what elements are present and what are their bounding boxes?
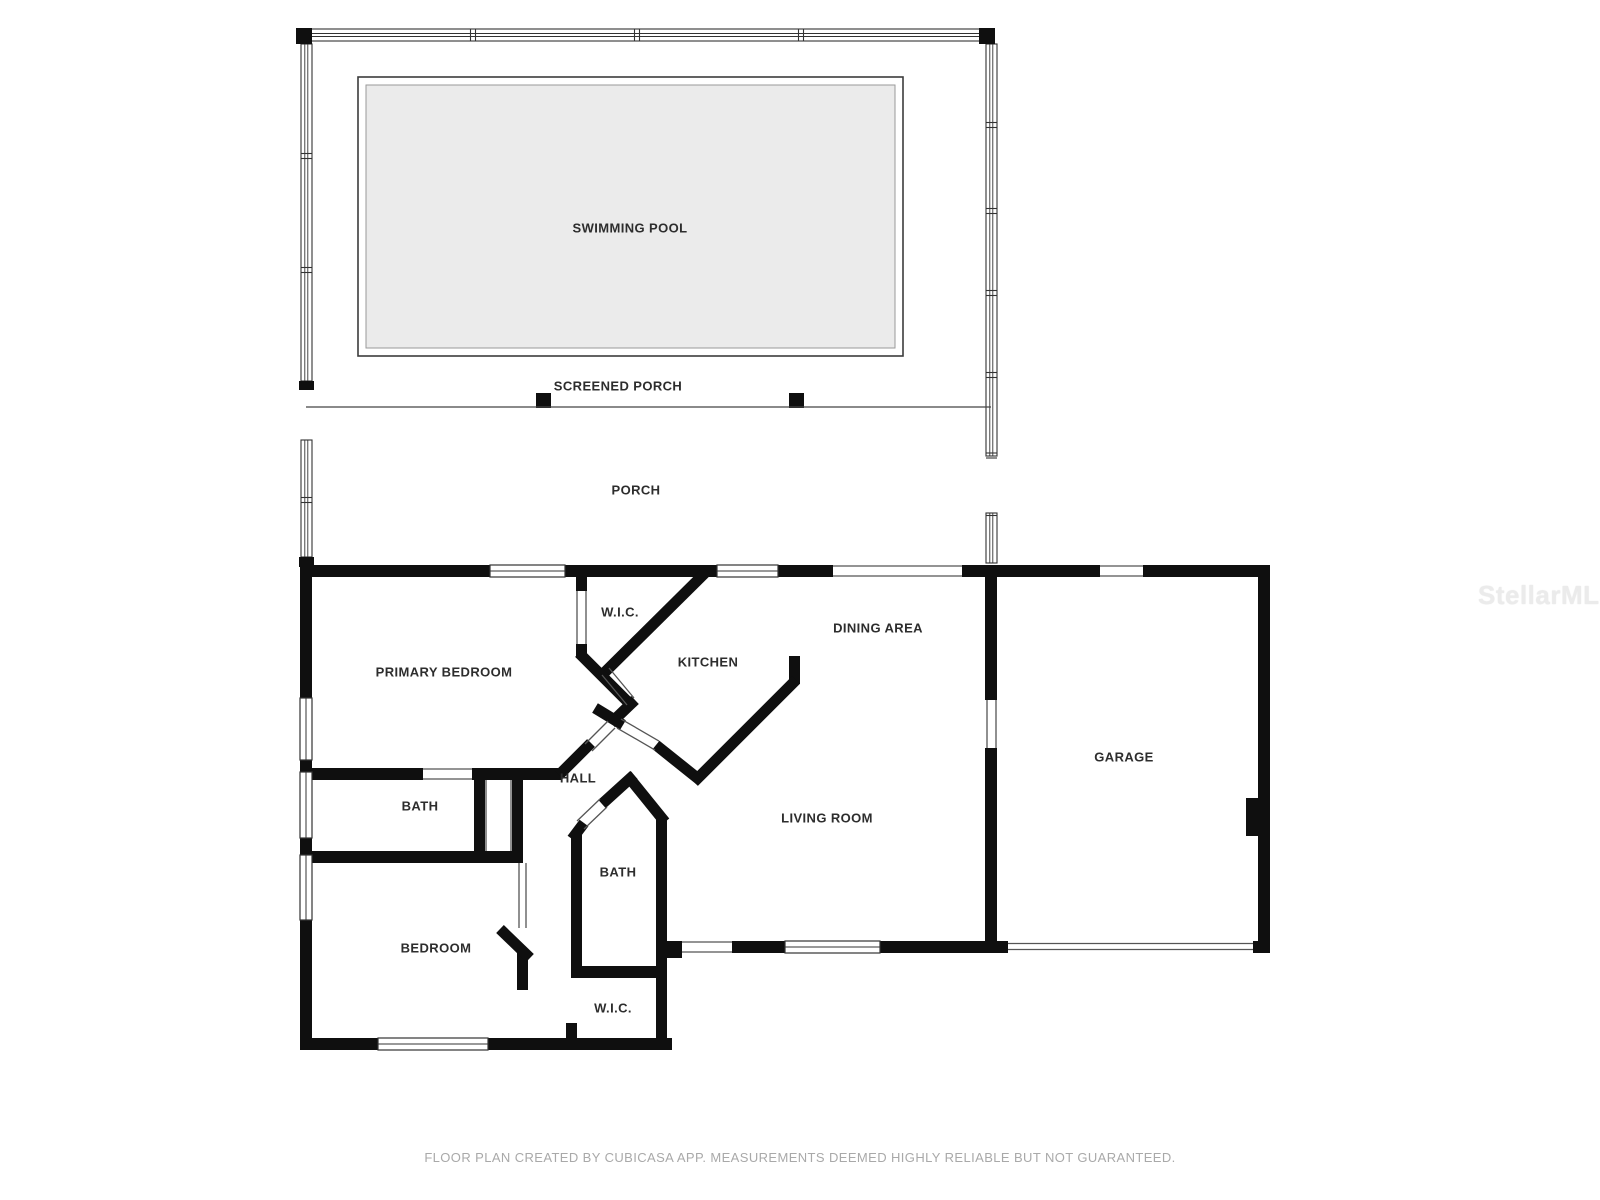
room-label-kitchen: KITCHEN bbox=[678, 655, 739, 670]
room-label-bath-upper: BATH bbox=[402, 799, 439, 814]
stellar-mls-watermark: StellarMLS bbox=[1478, 580, 1600, 611]
floorplan-drawing bbox=[0, 0, 1600, 1200]
garage-door bbox=[1008, 941, 1253, 953]
room-label-dining-area: DINING AREA bbox=[833, 621, 923, 636]
room-label-swimming-pool: SWIMMING POOL bbox=[573, 221, 688, 236]
room-label-bedroom: BEDROOM bbox=[401, 941, 472, 956]
door-openings bbox=[423, 566, 1143, 952]
room-label-garage: GARAGE bbox=[1094, 750, 1153, 765]
room-label-bath-lower: BATH bbox=[600, 865, 637, 880]
footer-disclaimer: FLOOR PLAN CREATED BY CUBICASA APP. MEAS… bbox=[0, 1150, 1600, 1165]
room-label-living-room: LIVING ROOM bbox=[781, 811, 873, 826]
room-label-hall: HALL bbox=[560, 771, 596, 786]
room-label-primary-bedroom: PRIMARY BEDROOM bbox=[376, 665, 513, 680]
room-label-wic-bottom: W.I.C. bbox=[594, 1001, 632, 1016]
diagonal-walls bbox=[500, 571, 796, 958]
room-label-screened-porch: SCREENED PORCH bbox=[554, 379, 682, 394]
room-label-wic-top: W.I.C. bbox=[601, 605, 639, 620]
room-label-porch: PORCH bbox=[612, 483, 661, 498]
swimming-pool-shape bbox=[358, 77, 903, 356]
floorplan-page: SWIMMING POOL SCREENED PORCH PORCH W.I.C… bbox=[0, 0, 1600, 1200]
house-walls bbox=[300, 565, 1270, 1050]
